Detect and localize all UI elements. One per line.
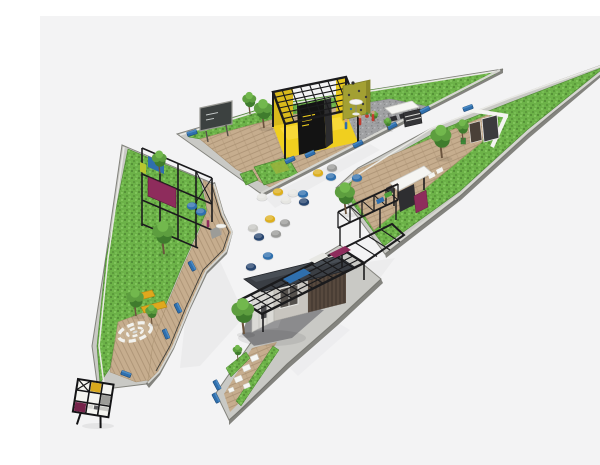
person-figure xyxy=(358,115,361,124)
person-figure xyxy=(371,111,374,120)
seating-pouf xyxy=(288,189,299,197)
seating-pouf xyxy=(263,252,274,260)
seating-pouf xyxy=(248,224,259,232)
seating-pouf xyxy=(271,230,282,238)
seating-pouf xyxy=(313,169,324,177)
seating-pouf xyxy=(326,173,337,181)
bench xyxy=(213,380,222,391)
site-plan-render: Axonometric 3D rendering of a triangular… xyxy=(40,16,600,465)
seating-pouf xyxy=(327,164,338,172)
seating-pouf xyxy=(273,188,284,196)
corner-kiosk-panel xyxy=(482,115,499,142)
seating-pouf xyxy=(187,202,198,210)
south-pavilion-parcel xyxy=(216,224,404,425)
person-figure xyxy=(344,119,347,128)
seating-pouf xyxy=(254,233,265,241)
seating-pouf xyxy=(265,215,276,223)
seating-pouf xyxy=(298,190,309,198)
seating-pouf xyxy=(257,193,268,201)
seating-pouf xyxy=(246,263,257,271)
seating-pouf xyxy=(299,198,310,206)
seating-pouf xyxy=(280,219,291,227)
seating-pouf xyxy=(196,208,207,216)
person-figure xyxy=(206,217,209,226)
seating-pouf xyxy=(281,196,292,204)
mondrian-sign xyxy=(71,379,114,429)
seating-pouf xyxy=(352,174,363,182)
